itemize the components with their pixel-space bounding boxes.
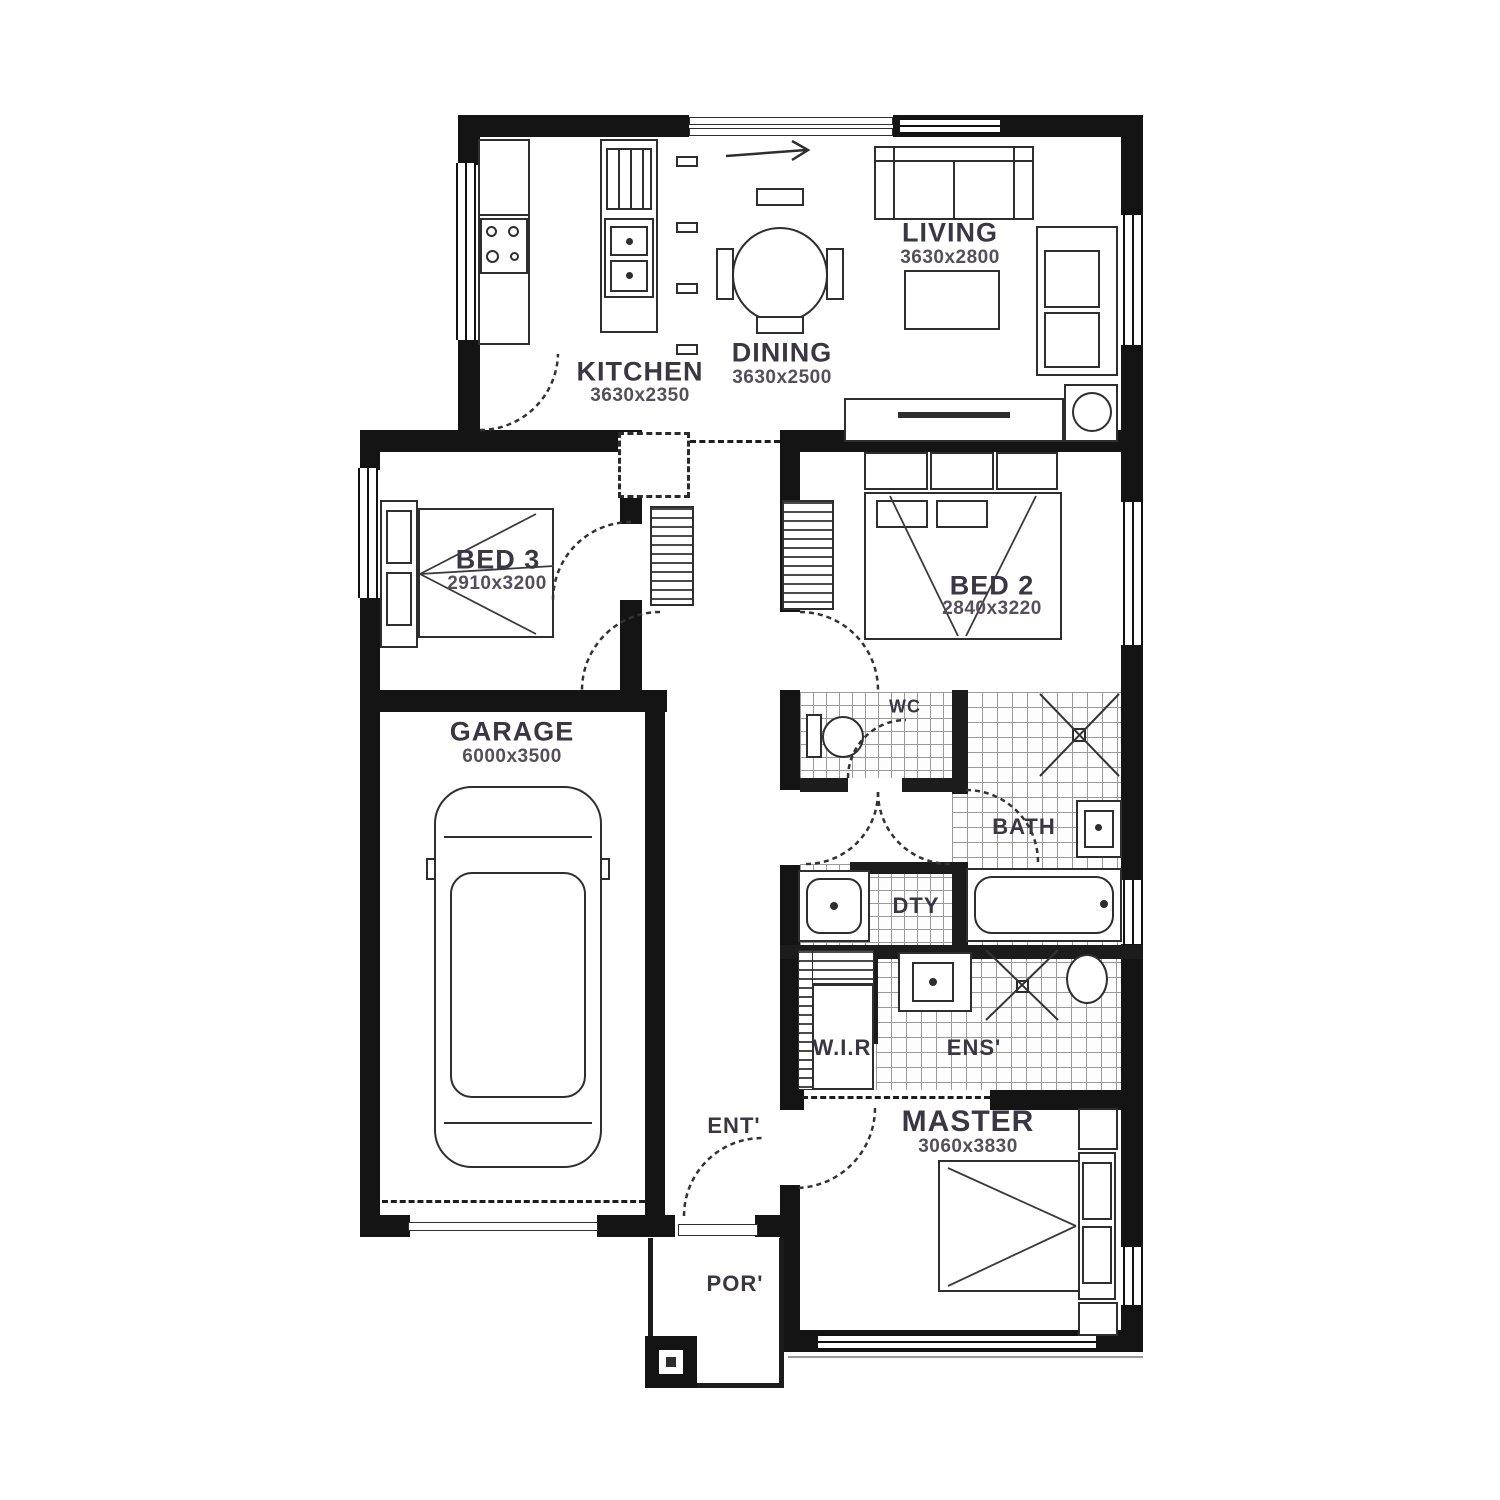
wall (360, 430, 380, 470)
wir-label: W.I.R (813, 1035, 872, 1061)
wall (1121, 645, 1143, 880)
garage-door-line (382, 1200, 645, 1203)
bed2-robe (782, 500, 834, 610)
wall (458, 115, 689, 137)
living-label: LIVING (902, 218, 998, 249)
porch-wall (779, 1238, 784, 1388)
wall (645, 690, 665, 1237)
bed3-label: BED 3 (456, 545, 541, 576)
bathtub-inner (974, 876, 1114, 934)
bar-stool (676, 222, 698, 233)
bed2-label: BED 2 (950, 571, 1035, 602)
wall (780, 690, 800, 790)
bath-tap (1100, 900, 1108, 908)
wall (952, 690, 968, 794)
master-label: MASTER (902, 1105, 1035, 1139)
pantry-cupboard (618, 432, 690, 498)
burner (486, 250, 499, 263)
bar-stool (676, 344, 698, 355)
tap (626, 238, 633, 245)
linen-cupboard (650, 506, 694, 606)
living-side-window (1123, 215, 1143, 345)
kitchen-dims: 3630x2350 (590, 385, 690, 407)
living-top-window (900, 118, 1000, 134)
dishwasher-line (618, 150, 620, 208)
bedside-table (1078, 1302, 1118, 1336)
sliding-door-panel (689, 128, 893, 136)
dining-chair (826, 248, 844, 300)
master-pillow (1082, 1226, 1112, 1284)
bed3-dims: 2910x3200 (447, 573, 547, 595)
dining-chair (716, 248, 734, 300)
master-mattress (938, 1160, 1080, 1292)
kitchen-label: KITCHEN (577, 357, 704, 388)
wc-pan (822, 716, 864, 758)
tv-screen (898, 412, 1010, 418)
master-window (818, 1334, 1096, 1350)
shower-drain (1016, 980, 1029, 993)
bed2-pillow (936, 500, 988, 528)
sliding-door-panel (689, 117, 893, 125)
car-hood-line (444, 836, 592, 838)
wall (458, 115, 480, 165)
bed3-pillow (386, 572, 412, 626)
bed2-window (1123, 502, 1143, 645)
wall (780, 1090, 804, 1110)
master-side-window (1123, 1247, 1143, 1305)
bath-window (1123, 880, 1143, 944)
dining-chair (756, 188, 804, 206)
dining-table (732, 227, 828, 323)
entry-door-sill (678, 1224, 758, 1236)
bed2-dims: 2840x3220 (942, 598, 1042, 620)
wall (597, 1215, 645, 1237)
garage-door-panel (408, 1222, 598, 1231)
wc-label: WC (889, 697, 921, 718)
hall-opening-line (690, 440, 780, 443)
wall (458, 340, 480, 435)
car-boot-line (444, 1122, 592, 1124)
dishwasher-line (630, 150, 632, 208)
bar-stool (676, 156, 698, 167)
wir-shelving (812, 950, 874, 984)
burner (486, 226, 497, 237)
tap (830, 902, 838, 910)
ensuite-label: ENS' (947, 1035, 1001, 1061)
master-door-arc (795, 1108, 875, 1188)
sofa-cushion-line (953, 160, 955, 218)
chaise-cushion (1044, 312, 1100, 368)
bed3-window (358, 468, 378, 598)
wall (360, 1215, 410, 1237)
bench-divider-line (478, 214, 530, 216)
bed2-bedhead-shelf (996, 452, 1058, 490)
living-dims: 3630x2800 (900, 247, 1000, 269)
sofa-back-line (876, 160, 1032, 162)
dining-chair (756, 316, 804, 334)
lobby-door-arc (878, 792, 950, 864)
wall (902, 778, 952, 792)
wall (780, 865, 800, 1110)
master-sill-line (788, 1356, 1143, 1358)
dishwasher (606, 148, 652, 210)
floor-plan: LIVING 3630x2800 DINING 3630x2500 KITCHE… (0, 0, 1500, 1500)
car-cabin (450, 872, 586, 1098)
bed2-pillow (876, 500, 928, 528)
laundry-label: DTY (893, 893, 940, 919)
chaise-cushion (1044, 250, 1100, 308)
shower-drain (1072, 728, 1086, 742)
garage-label: GARAGE (450, 717, 575, 748)
burner (508, 226, 519, 237)
tv-unit (844, 398, 1064, 442)
porch-column-core (666, 1357, 676, 1367)
wall (1121, 115, 1143, 215)
bed2-bedhead-shelf (864, 452, 928, 490)
bar-stool (676, 283, 698, 294)
plant (1072, 392, 1112, 432)
sliding-door-arrow-head (792, 141, 808, 160)
master-dims: 3060x3830 (918, 1136, 1018, 1158)
tap (929, 978, 937, 986)
pantry-door-arc (480, 354, 558, 430)
wc-cistern (806, 714, 822, 758)
bath-label: BATH (992, 814, 1055, 840)
tap (1095, 824, 1102, 831)
lobby-door-arc (806, 792, 878, 864)
bed3-pillow (386, 510, 412, 564)
master-pillow (1082, 1162, 1112, 1220)
front-door-arc (684, 1138, 762, 1216)
tap (626, 272, 633, 279)
burner (510, 252, 519, 261)
wall (800, 778, 848, 792)
coffee-table (904, 270, 1000, 330)
dining-label: DINING (732, 338, 833, 369)
garage-dims: 6000x3500 (462, 746, 562, 768)
sofa-arm-line (893, 148, 895, 218)
master-robe-line (802, 1096, 990, 1099)
sofa-arm-line (1013, 148, 1015, 218)
car-mirror (426, 858, 436, 880)
dishwasher-line (642, 150, 644, 208)
wall (1121, 345, 1143, 502)
bedside-table (1078, 1108, 1118, 1150)
car-mirror (600, 858, 610, 880)
sliding-door-arrow (726, 150, 806, 156)
kitchen-window (456, 163, 476, 340)
bed2-bedhead-shelf (930, 452, 994, 490)
wall (360, 430, 602, 452)
porch-label: POR' (707, 1271, 764, 1297)
bed3-door-arc (553, 522, 631, 600)
wall (620, 600, 642, 712)
dining-dims: 3630x2500 (732, 367, 832, 389)
entry-label: ENT' (707, 1113, 760, 1139)
ensuite-wc-pan (1066, 954, 1108, 1004)
